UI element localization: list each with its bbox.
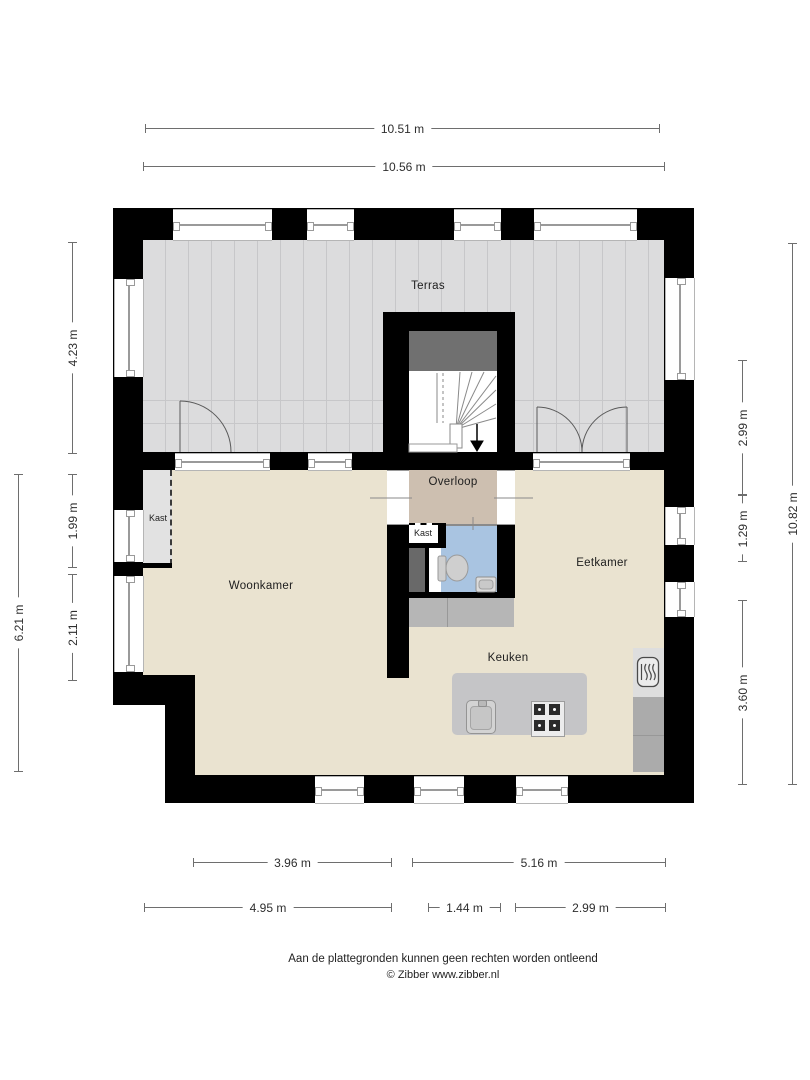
oven-unit (633, 648, 664, 697)
room-kitchen-floor (195, 675, 664, 775)
dimension-bottom-upper-1: 3.96 m (193, 862, 392, 863)
room-label-keuken: Keuken (488, 652, 529, 664)
bathroom-door-gap (429, 548, 441, 592)
island-sink-icon (466, 700, 496, 734)
dimension-top-2: 10.56 m (143, 166, 665, 167)
window (665, 582, 695, 617)
window (534, 209, 637, 241)
burner (549, 720, 560, 731)
closet-dark (409, 548, 425, 592)
dimension-left-2: 1.99 m (72, 474, 73, 568)
oven-icon (636, 656, 660, 688)
bathroom-top-line (446, 524, 497, 526)
room-label-woonkamer: Woonkamer (229, 580, 293, 592)
wall-closet-left-stub (143, 563, 172, 568)
window (516, 776, 568, 804)
dimension-right-1: 2.99 m (742, 360, 743, 495)
window (315, 776, 364, 804)
footer-credit: © Zibber www.zibber.nl (143, 969, 743, 981)
doorway (497, 470, 515, 525)
door-threshold (308, 453, 352, 471)
window (454, 209, 501, 241)
door-threshold (533, 453, 630, 471)
room-bathroom (441, 525, 497, 592)
room-label-overloop: Overloop (428, 476, 477, 488)
window (414, 776, 464, 804)
kitchen-counter-mid (409, 598, 514, 627)
room-label-eetkamer: Eetkamer (576, 557, 628, 569)
window (173, 209, 272, 241)
wall-bathroom-bottom (403, 592, 515, 598)
window (114, 576, 144, 672)
kitchen-counter-right (633, 697, 664, 772)
cooktop-icon (531, 701, 565, 737)
stairs (409, 371, 497, 452)
floor-plan: Terras Woonkamer Eetkamer Keuken Overloo… (0, 0, 810, 1080)
window (307, 209, 354, 241)
footer: Aan de plattegronden kunnen geen rechten… (143, 953, 743, 981)
dimension-bottom-lower-1: 4.95 m (144, 907, 392, 908)
window (114, 279, 144, 377)
dimension-left-1: 4.23 m (72, 242, 73, 454)
footer-disclaimer: Aan de plattegronden kunnen geen rechten… (143, 953, 743, 965)
dimension-left-outer: 6.21 m (18, 474, 19, 772)
dimension-right-2: 1.29 m (742, 495, 743, 562)
dimension-left-3: 2.11 m (72, 574, 73, 681)
dimension-bottom-upper-2: 5.16 m (412, 862, 666, 863)
window (665, 278, 695, 380)
dimension-bottom-lower-3: 2.99 m (515, 907, 666, 908)
wall-notch-horizontal (113, 675, 195, 705)
wall-stairwell-left (383, 312, 409, 455)
dimension-top-1: 10.51 m (145, 128, 660, 129)
window (665, 507, 695, 545)
wall-bath-divider (425, 548, 429, 592)
burner (534, 704, 545, 715)
counter-seam (447, 598, 448, 627)
dimension-right-3: 3.60 m (742, 600, 743, 785)
room-label-terras: Terras (411, 280, 445, 292)
burner (534, 720, 545, 731)
burner (549, 704, 560, 715)
stair-landing (409, 331, 497, 371)
door-threshold (175, 453, 270, 471)
dimension-right-outer: 10.82 m (792, 243, 793, 785)
doorway (387, 470, 409, 525)
room-label-kast-left: Kast (149, 513, 167, 523)
window (114, 510, 144, 562)
dimension-bottom-lower-2: 1.44 m (428, 907, 501, 908)
wall-stairwell-right (497, 312, 515, 470)
counter-seam (633, 735, 664, 736)
wall-stairwell-top (383, 312, 515, 331)
room-label-kast-mid: Kast (414, 528, 432, 538)
